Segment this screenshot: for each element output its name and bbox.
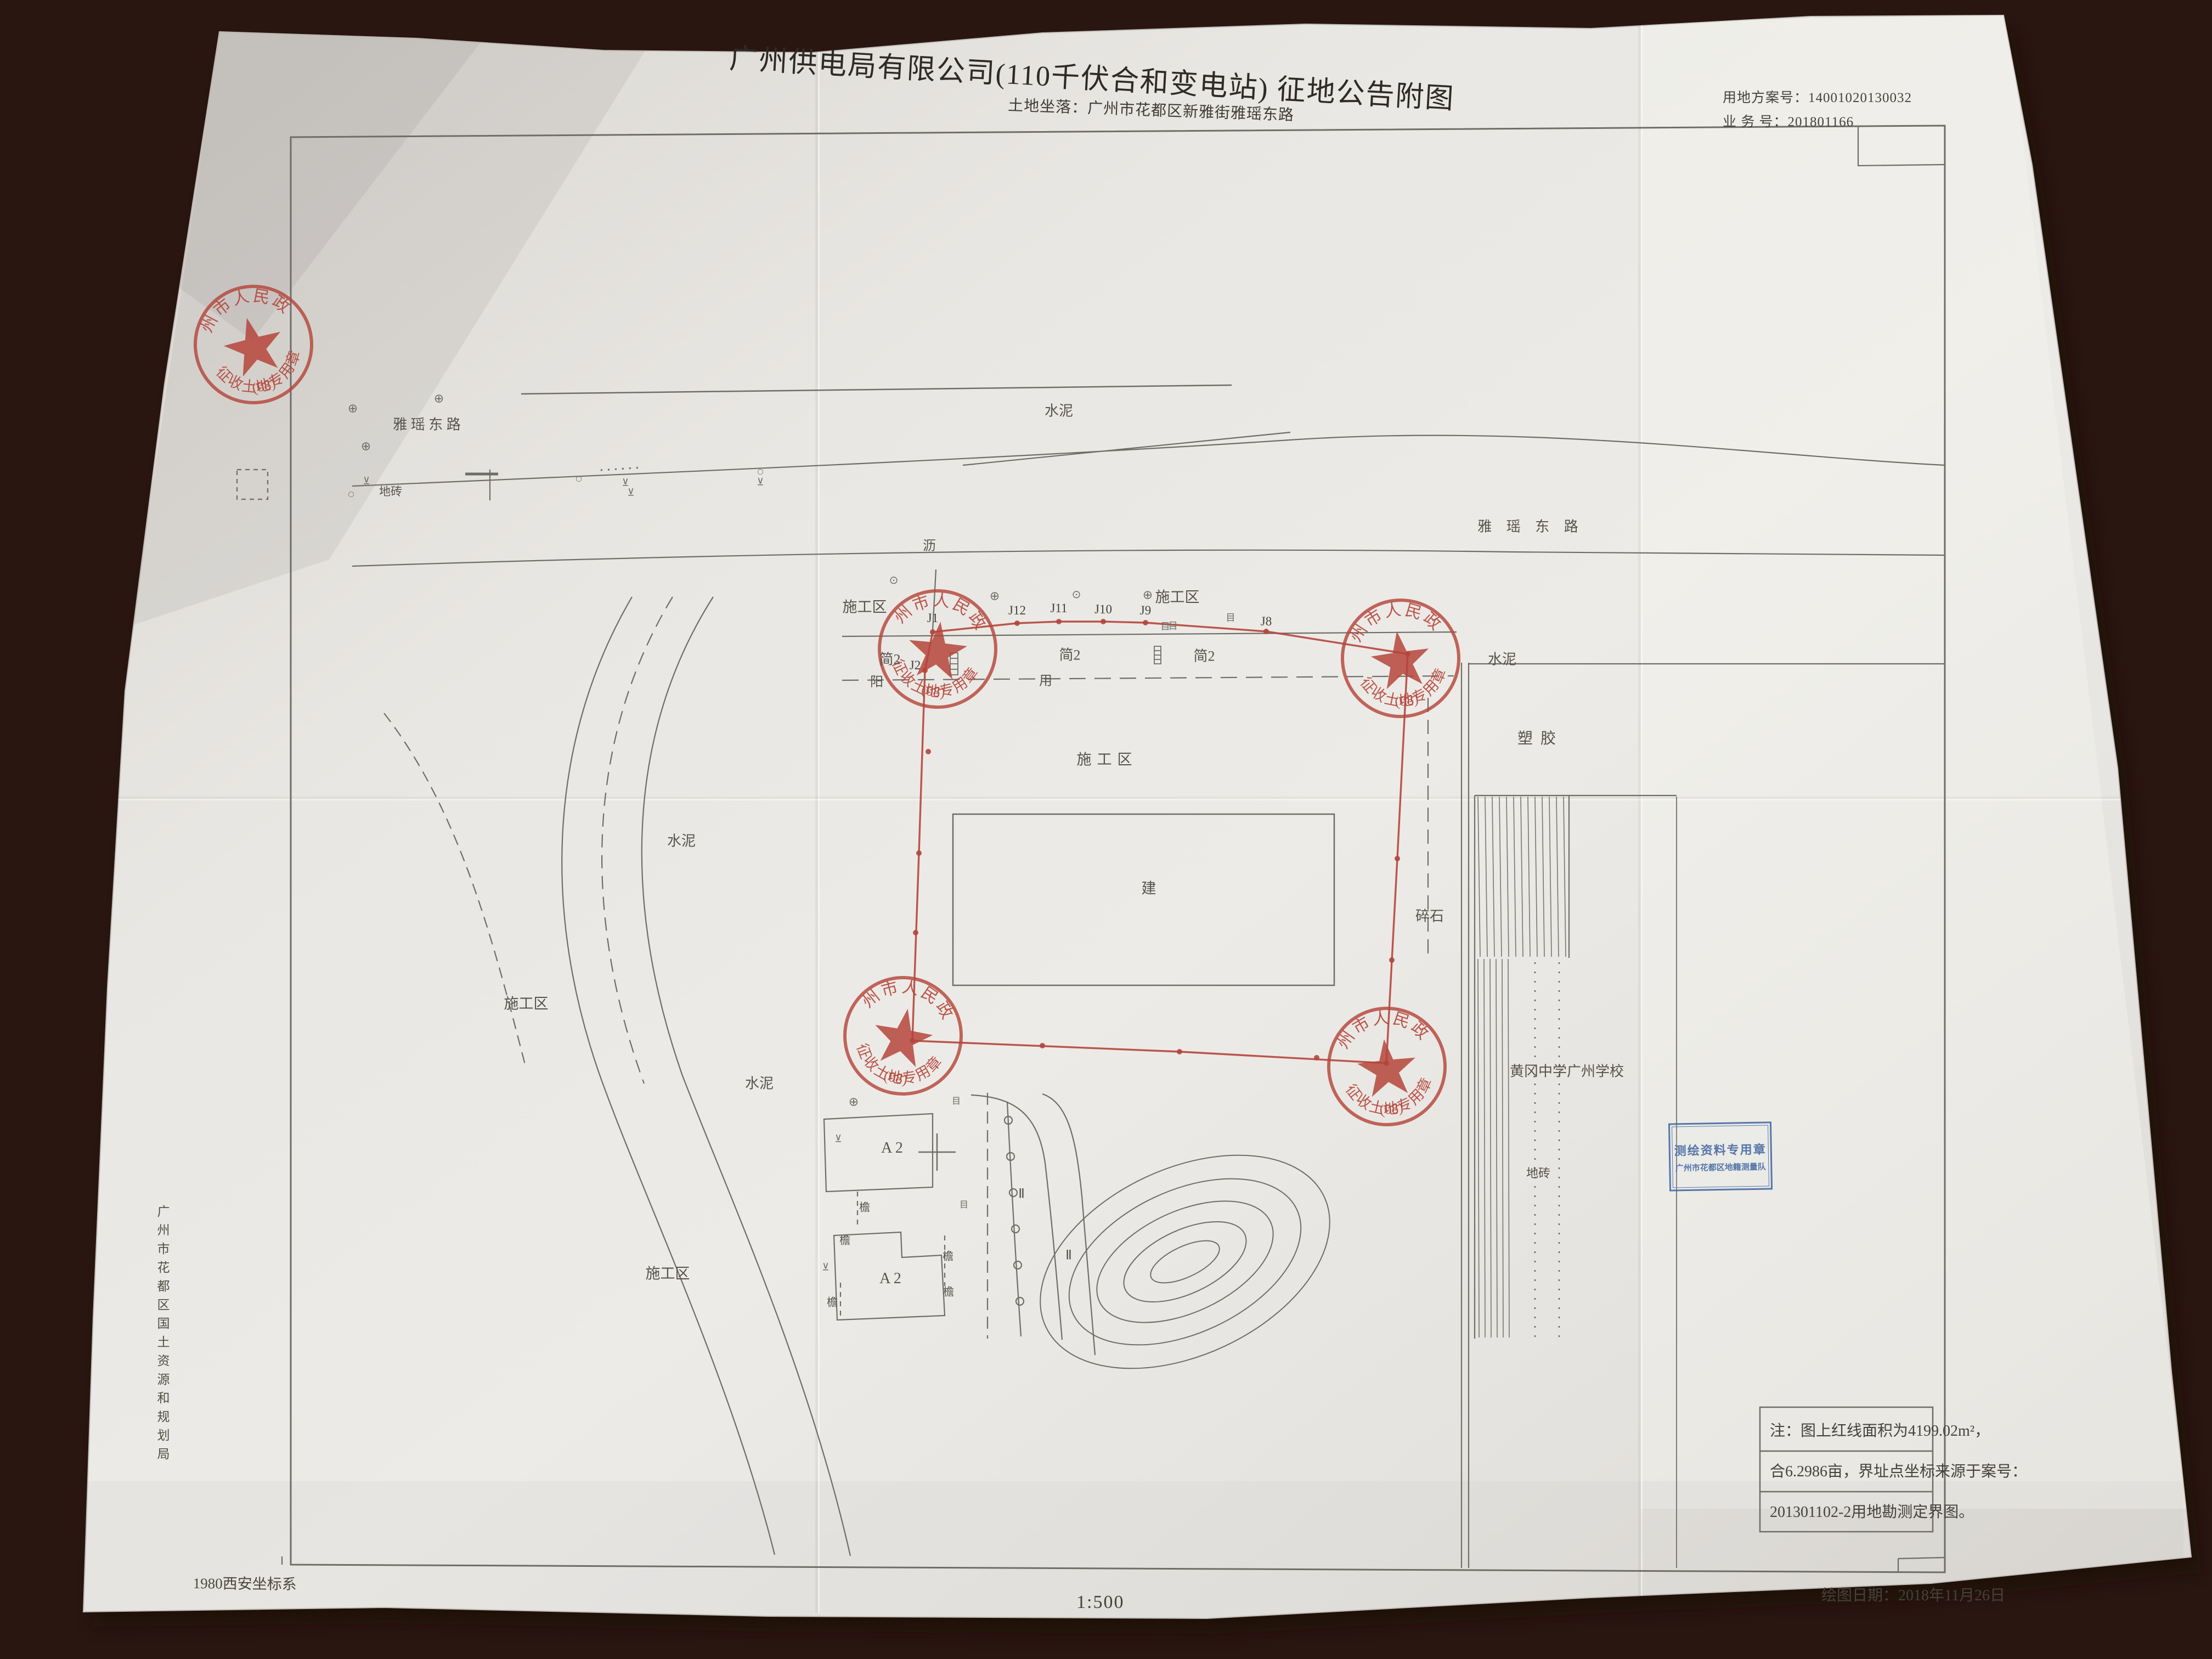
map-symbol: ⊙ — [1072, 588, 1081, 601]
map-symbol: ⊕ — [361, 440, 371, 454]
map-label: A 2 — [879, 1270, 901, 1288]
map-label: 檐 — [839, 1232, 850, 1248]
map-symbol: 目 — [960, 1197, 968, 1210]
map-label: 檐 — [943, 1248, 953, 1263]
map-label: 水泥 — [745, 1073, 774, 1093]
map-symbol: 目 — [1226, 610, 1235, 624]
map-label: 黄冈中学广州学校 — [1510, 1060, 1624, 1081]
boundary-point-label: J2 — [910, 658, 921, 673]
map-symbol: ⊕ — [434, 392, 444, 406]
map-label: 阳 — [870, 671, 883, 690]
map-symbol: ○ — [575, 475, 582, 483]
map-label: 檐 — [943, 1283, 954, 1299]
boundary-point-label: J12 — [1008, 603, 1026, 618]
boundary-point-label: J11 — [1050, 601, 1067, 616]
boundary-point-label: J9 — [1140, 603, 1151, 618]
map-label: 施工区 — [1155, 585, 1200, 607]
map-label: 水泥 — [667, 830, 696, 850]
map-symbol: ⊻ — [627, 487, 634, 499]
map-symbol: ⊕ — [849, 1096, 859, 1109]
map-symbol: ○ — [348, 490, 354, 499]
map-symbol: 目 — [952, 1093, 961, 1107]
boundary-point-label: J8 — [1261, 614, 1272, 629]
map-symbol: ⊻ — [834, 1133, 842, 1145]
boundary-point-label: J1 — [927, 611, 938, 625]
map-label: 施工区 — [1077, 748, 1138, 769]
map-label: 施工区 — [843, 595, 887, 617]
map-symbol: ⊻ — [363, 476, 370, 487]
map-label: 雅 瑶 东 路 — [393, 414, 461, 434]
map-label: 用 — [1039, 670, 1052, 689]
map-label: 地砖 — [379, 483, 402, 499]
map-symbol: ⊕ — [990, 590, 1000, 603]
map-labels-layer: 雅 瑶 东 路水泥雅 瑶 东 路地砖沥施工区施工区简2简2简2用阳水泥塑胶碎石水… — [0, 0, 2212, 1659]
map-symbol: 目 — [1169, 618, 1178, 632]
map-symbol: ⊙ — [889, 573, 899, 586]
map-label: 碎石 — [1415, 905, 1444, 926]
map-label: 建 — [1142, 877, 1156, 898]
map-label: 水泥 — [1488, 648, 1516, 669]
map-label: 水泥 — [1045, 400, 1073, 420]
map-symbol: ⊕ — [348, 402, 358, 416]
map-symbol: ⊻ — [822, 1262, 829, 1273]
map-label: 简2 — [879, 648, 900, 669]
map-label: 施工区 — [646, 1262, 690, 1283]
map-symbol: ○ — [757, 468, 763, 476]
photo-of-land-acquisition-map: 广州市人民政府征收土地专用章(08)广州市人民政府征收土地专用章(08)广州市人… — [0, 0, 2212, 1659]
boundary-point-label: J10 — [1094, 602, 1112, 617]
map-label: Ⅱ — [1065, 1248, 1072, 1263]
map-label: 地砖 — [1526, 1164, 1550, 1181]
map-label: 塑胶 — [1517, 726, 1564, 748]
map-label: A 2 — [881, 1139, 903, 1157]
map-label: 檐 — [827, 1294, 838, 1310]
map-symbol: ⊕ — [1143, 589, 1153, 602]
map-label: 檐 — [859, 1199, 870, 1215]
map-label: Ⅱ — [1018, 1186, 1025, 1202]
map-symbol: ⊻ — [757, 477, 764, 488]
map-label: 简2 — [1059, 644, 1080, 664]
map-label: 简2 — [1193, 645, 1215, 665]
map-label: 沥 — [923, 535, 936, 554]
map-label: 雅 瑶 东 路 — [1477, 516, 1584, 536]
map-label: 施工区 — [504, 992, 549, 1013]
